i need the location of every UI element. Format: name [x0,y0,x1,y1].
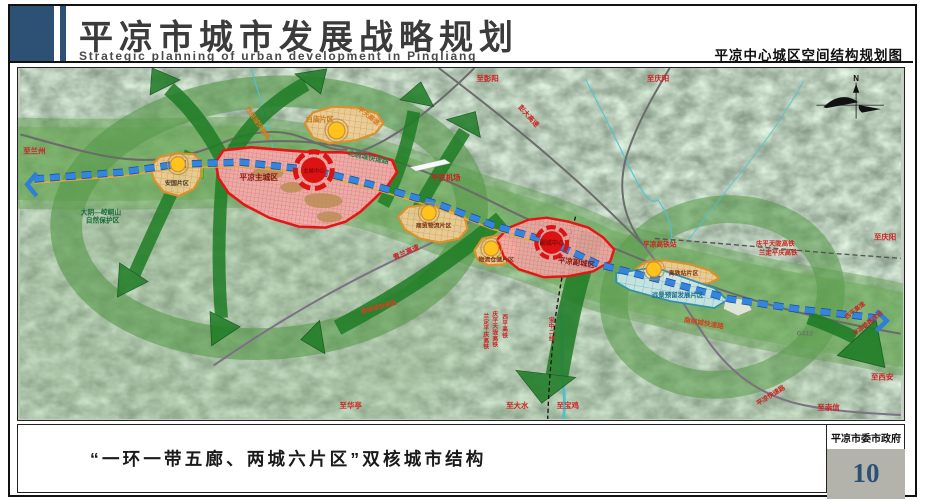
svg-text:平凉机场: 平凉机场 [431,172,461,182]
svg-text:平凉高铁站: 平凉高铁站 [643,239,677,248]
svg-text:至宝鸡: 至宝鸡 [557,400,580,410]
svg-text:平凉主城区: 平凉主城区 [239,172,278,182]
svg-text:兰定平庆高铁: 兰定平庆高铁 [482,312,489,351]
svg-text:安国片区: 安国片区 [165,179,189,187]
svg-text:G312: G312 [797,331,814,338]
svg-text:主城中心: 主城中心 [303,167,325,175]
svg-text:至庆阳: 至庆阳 [874,232,896,242]
svg-text:物流仓储片区: 物流仓储片区 [478,255,514,263]
svg-text:远景预留发展片区: 远景预留发展片区 [652,290,704,299]
svg-text:至彭阳: 至彭阳 [476,73,498,83]
svg-text:庆平天陇高铁: 庆平天陇高铁 [755,238,795,247]
svg-text:至崇信: 至崇信 [817,402,840,412]
svg-text:至华亭: 至华亭 [340,400,363,410]
svg-text:至大水: 至大水 [506,400,529,410]
svg-text:宝中二线: 宝中二线 [549,316,555,342]
svg-text:高铁站片区: 高铁站片区 [669,269,699,277]
svg-text:至庆阳: 至庆阳 [647,73,669,83]
svg-text:至兰州: 至兰州 [23,145,45,155]
svg-text:庆平天陇高铁: 庆平天陇高铁 [491,310,498,349]
svg-text:商贸物流片区: 商贸物流片区 [416,222,452,230]
svg-text:自然保护区: 自然保护区 [86,216,120,225]
svg-text:白庙片区: 白庙片区 [306,115,334,124]
svg-text:N: N [853,74,859,83]
svg-text:大阴—崆峒山: 大阴—崆峒山 [81,208,122,217]
svg-text:至西安: 至西安 [871,371,894,381]
svg-text:兰定平庆高铁: 兰定平庆高铁 [759,247,798,256]
svg-text:副城中心: 副城中心 [539,239,564,247]
svg-text:西平高铁: 西平高铁 [502,313,508,339]
